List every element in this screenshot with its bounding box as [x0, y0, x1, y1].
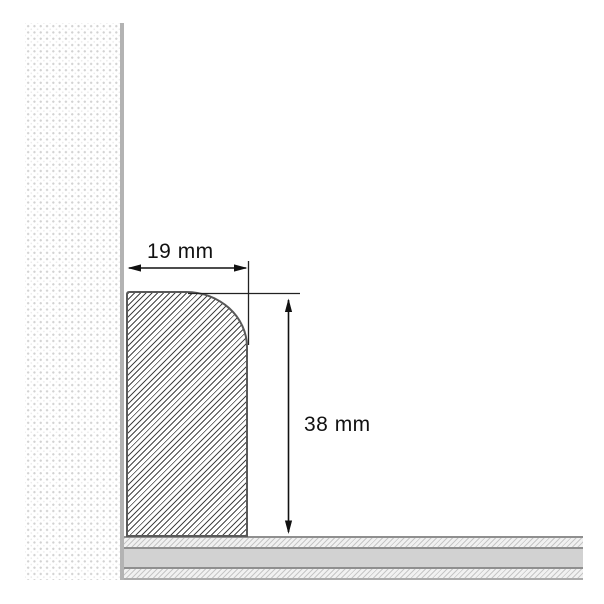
technical-drawing: 19 mm 38 mm: [0, 0, 604, 604]
skirting-board-profile: [126, 291, 248, 537]
floor-bottom-line: [124, 578, 583, 580]
height-arrow-down-icon: [285, 521, 292, 535]
floor-gray-band: [124, 549, 583, 567]
width-arrow-left-icon: [128, 264, 142, 271]
width-dimension-label: 19 mm: [147, 241, 214, 262]
width-arrow-right-icon: [234, 264, 248, 271]
height-dimension-label: 38 mm: [304, 414, 371, 435]
floor-hatch-band-bottom: [124, 569, 583, 578]
wall-surface-line: [120, 23, 124, 580]
wall-stipple-texture: [25, 23, 120, 580]
floor-hatch-band-top: [124, 538, 583, 547]
floor-section: [124, 536, 583, 580]
height-arrow-up-icon: [285, 299, 292, 313]
